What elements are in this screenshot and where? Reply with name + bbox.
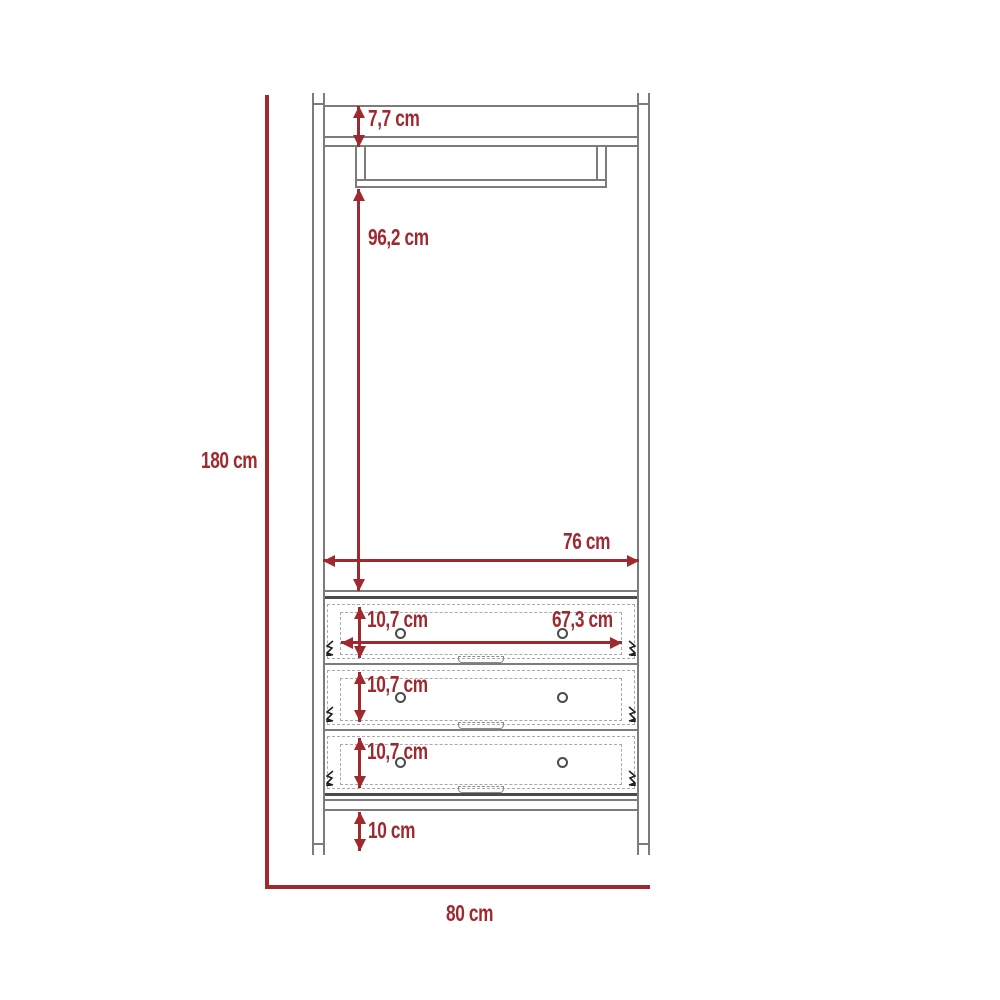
corner-bracket-icon [326, 770, 336, 786]
drawer-3-right-knob-icon [557, 757, 568, 768]
drawer-section-bottom-edge [324, 793, 638, 796]
corner-bracket-icon [626, 706, 636, 722]
drawer-2-handle [458, 722, 504, 729]
drawer-separator [324, 729, 638, 731]
dim-label-drawer-2-height: 10,7 cm [367, 673, 428, 696]
dim-arrow-leg-clearance [358, 812, 361, 851]
dim-label-interior-width: 76 cm [563, 530, 610, 553]
dim-arrow-drawer-width [341, 641, 622, 644]
dim-arrow-hanging-space [357, 189, 360, 591]
bottom-shelf-top-edge [312, 799, 650, 801]
corner-bracket-icon [626, 770, 636, 786]
dim-label-drawer-1-height: 10,7 cm [367, 608, 428, 631]
dim-label-hanging-space: 96,2 cm [368, 226, 429, 249]
dim-arrow-drawer-3-height [358, 738, 361, 788]
drawer-3-handle [458, 786, 504, 793]
right-post-foot-cap [639, 843, 648, 845]
drawer-2-right-knob-icon [557, 692, 568, 703]
dim-label-total-height: 180 cm [201, 449, 257, 472]
hanging-rod [355, 179, 607, 188]
dim-arrow-drawer-2-height [358, 672, 361, 722]
wardrobe-left-post [312, 93, 325, 855]
dim-arrow-interior-width [323, 559, 639, 562]
right-post-top-cap [639, 103, 648, 105]
diagram-canvas: 7,7 cm 96,2 cm 180 cm 76 cm 10,7 cm 67,3… [0, 0, 1000, 1000]
left-post-foot-cap [314, 843, 323, 845]
drawer-separator [324, 663, 638, 665]
drawer-1-handle [458, 656, 504, 663]
dim-label-total-width: 80 cm [446, 902, 493, 925]
dim-label-drawer-width: 67,3 cm [552, 608, 613, 631]
corner-bracket-icon [326, 706, 336, 722]
bottom-shelf-bottom-edge [312, 809, 650, 811]
corner-bracket-icon [626, 640, 636, 656]
dim-arrow-top-panel [357, 106, 360, 147]
dim-line-total-height [265, 95, 269, 889]
dim-label-drawer-3-height: 10,7 cm [367, 740, 428, 763]
left-post-top-cap [314, 103, 323, 105]
dim-line-total-width [265, 885, 650, 889]
wardrobe-right-post [637, 93, 650, 855]
dim-arrow-drawer-1-height [358, 607, 361, 658]
dim-label-leg-clearance: 10 cm [368, 819, 415, 842]
drawer-section-top-edge [324, 596, 638, 599]
corner-bracket-icon [326, 640, 336, 656]
dim-label-top-panel: 7,7 cm [368, 107, 419, 130]
